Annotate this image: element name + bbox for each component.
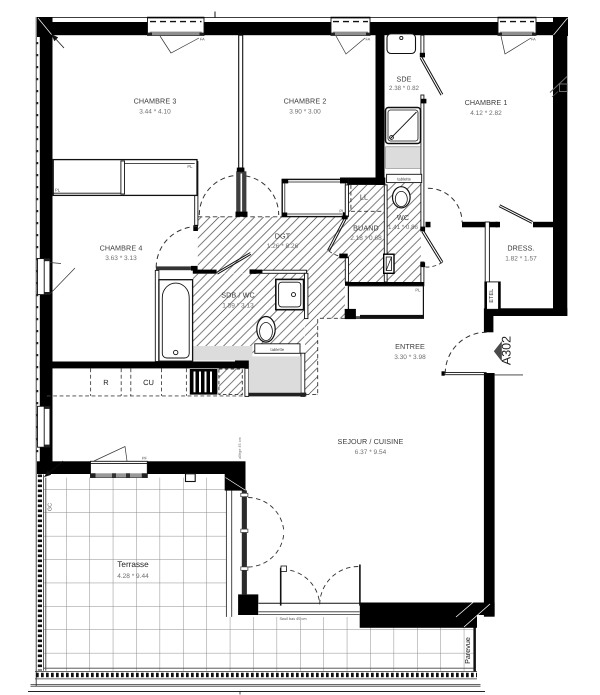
svg-text:3.30 * 3.98: 3.30 * 3.98	[394, 354, 426, 361]
svg-text:DGT: DGT	[275, 232, 291, 241]
svg-text:PF: PF	[142, 457, 148, 461]
svg-text:A302: A302	[500, 336, 514, 365]
svg-text:ENTREE: ENTREE	[395, 342, 425, 351]
svg-text:tablette: tablette	[270, 347, 284, 352]
svg-text:allège 45 cm: allège 45 cm	[238, 437, 242, 459]
svg-text:CHAMBRE 1: CHAMBRE 1	[465, 98, 508, 107]
svg-text:PL: PL	[55, 188, 61, 193]
svg-text:6.37 * 9.54: 6.37 * 9.54	[355, 449, 387, 456]
svg-text:1.41 * 0.86: 1.41 * 0.86	[388, 224, 418, 231]
svg-text:CHAMBRE 4: CHAMBRE 4	[100, 244, 143, 253]
svg-text:PL: PL	[339, 209, 345, 214]
svg-text:4.28 * 9.44: 4.28 * 9.44	[117, 573, 149, 580]
svg-text:LL: LL	[360, 193, 368, 202]
svg-text:CU: CU	[143, 378, 154, 387]
svg-text:2.18 * 0.68: 2.18 * 0.68	[350, 235, 382, 242]
svg-text:SEJOUR / CUISINE: SEJOUR / CUISINE	[338, 437, 404, 446]
svg-text:tablette: tablette	[397, 177, 411, 182]
svg-text:FA: FA	[531, 38, 536, 42]
svg-text:2.38 * 0.82: 2.38 * 0.82	[389, 85, 419, 92]
svg-text:4.12 * 2.82: 4.12 * 2.82	[470, 110, 502, 117]
svg-text:CHAMBRE 2: CHAMBRE 2	[284, 97, 327, 106]
svg-text:CHAMBRE 3: CHAMBRE 3	[134, 97, 177, 106]
svg-text:GC: GC	[48, 503, 54, 511]
svg-text:FA: FA	[366, 38, 371, 42]
svg-text:Parevue: Parevue	[463, 637, 472, 664]
svg-text:ETEL: ETEL	[489, 289, 495, 303]
svg-text:DRESS.: DRESS.	[507, 244, 534, 253]
svg-text:SDB / WC: SDB / WC	[221, 291, 255, 300]
svg-text:SDE: SDE	[396, 75, 411, 84]
svg-text:3.63 * 3.13: 3.63 * 3.13	[105, 255, 137, 262]
svg-text:FA: FA	[200, 38, 205, 42]
svg-text:3.44 * 4.10: 3.44 * 4.10	[139, 109, 171, 116]
svg-text:Seuil bas 45 cm: Seuil bas 45 cm	[279, 617, 306, 621]
svg-text:BUAND: BUAND	[353, 224, 379, 233]
svg-text:R: R	[103, 378, 109, 387]
svg-text:Terrasse: Terrasse	[117, 560, 149, 569]
svg-text:WC: WC	[397, 213, 409, 222]
svg-text:1.26 * 8.26: 1.26 * 8.26	[267, 243, 299, 250]
svg-text:PL: PL	[415, 288, 421, 293]
svg-text:1.89 * 3.13: 1.89 * 3.13	[222, 303, 254, 310]
svg-text:PL: PL	[187, 164, 193, 169]
svg-text:1.82 * 1.57: 1.82 * 1.57	[505, 256, 537, 263]
svg-text:3.90 * 3.00: 3.90 * 3.00	[289, 109, 321, 116]
